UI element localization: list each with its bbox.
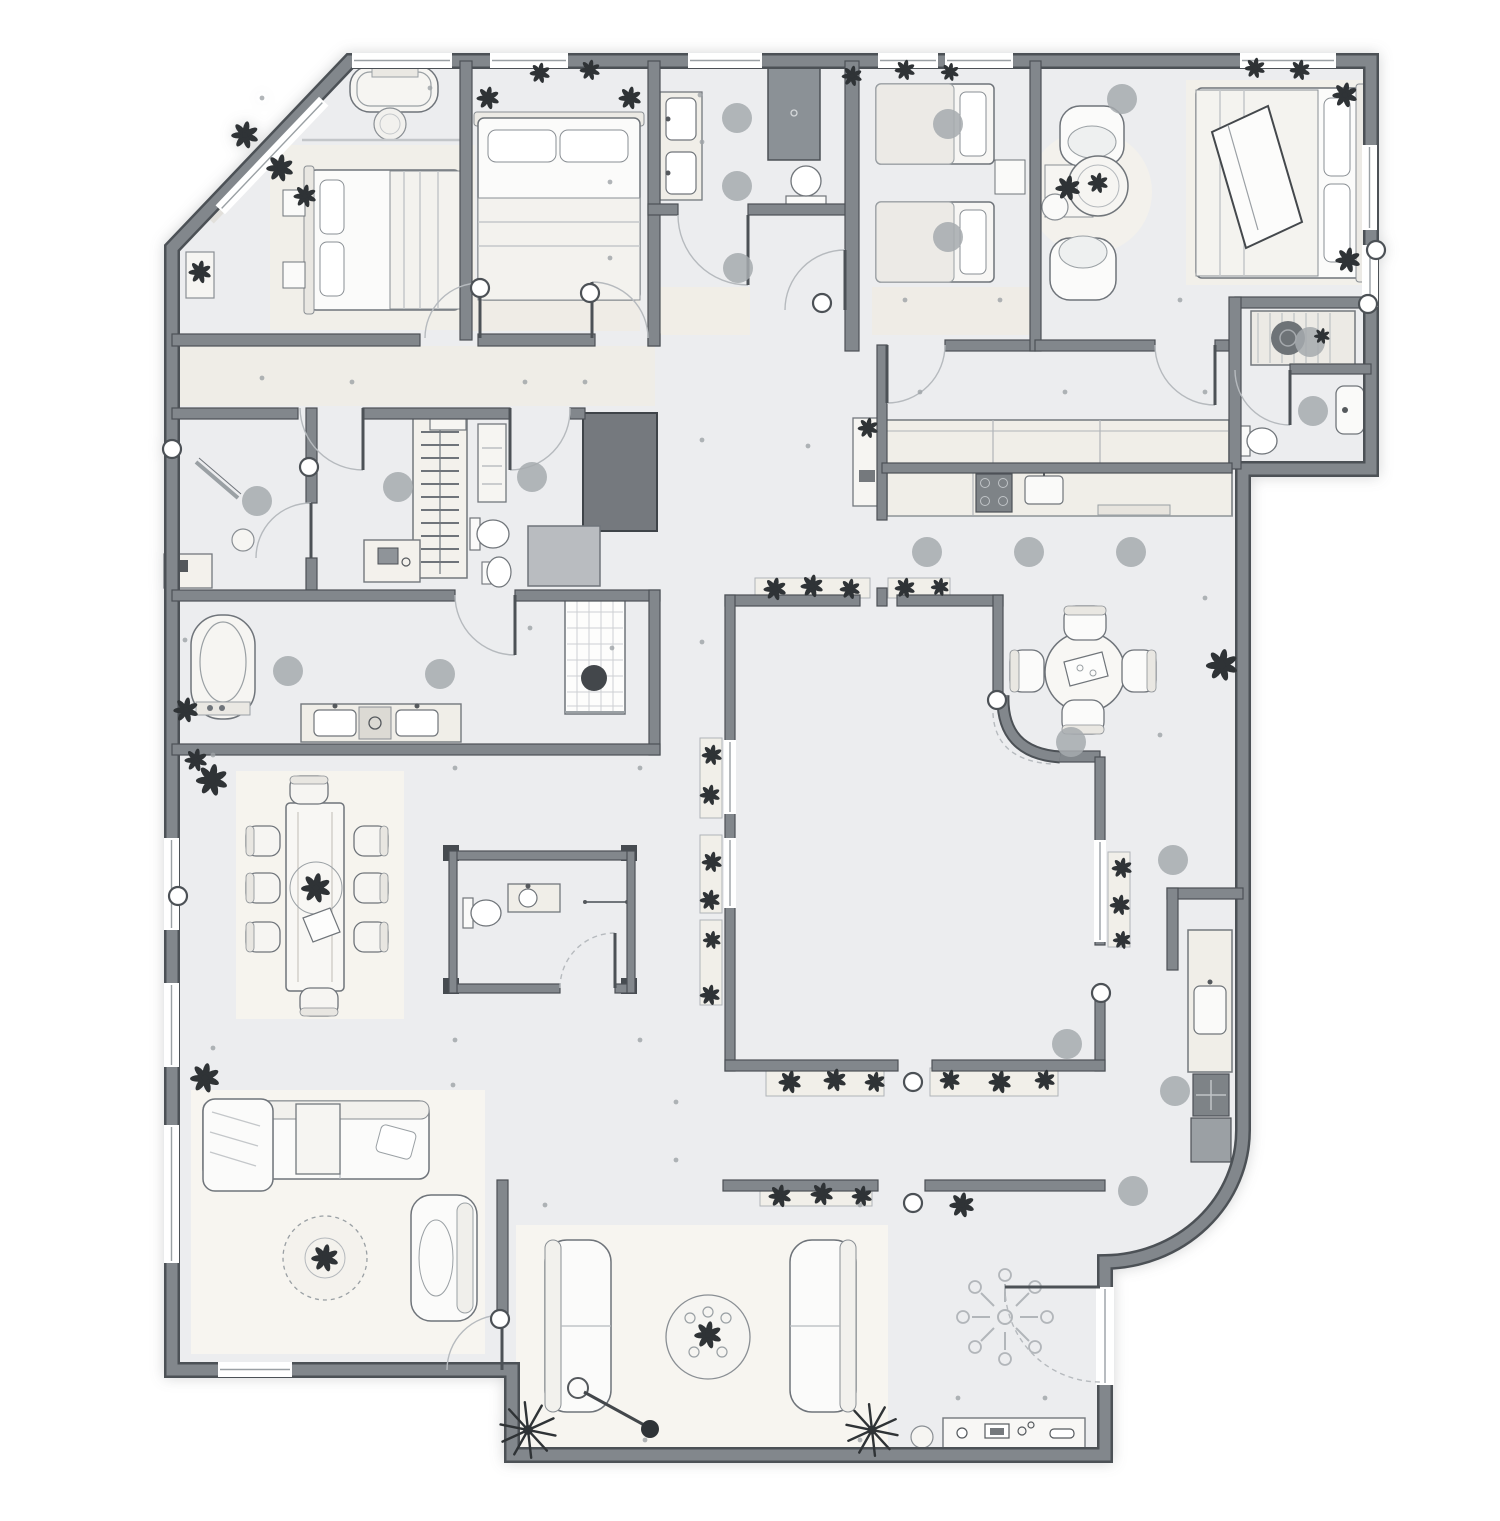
stool[interactable]: [911, 1426, 933, 1448]
wall-segment: [306, 558, 317, 590]
wall-segment: [725, 595, 860, 606]
window[interactable]: [945, 53, 1013, 68]
door-knob[interactable]: [988, 691, 1006, 709]
door-knob[interactable]: [163, 440, 181, 458]
window[interactable]: [724, 740, 736, 814]
wall-segment: [172, 590, 455, 601]
window[interactable]: [1096, 1287, 1114, 1385]
dining-table[interactable]: [286, 803, 344, 991]
wall-segment: [570, 408, 585, 419]
door-knob[interactable]: [1367, 241, 1385, 259]
window[interactable]: [218, 1362, 292, 1377]
wall-segment: [945, 340, 1035, 351]
bathroom-vanity[interactable]: [301, 704, 461, 743]
door-knob[interactable]: [1359, 295, 1377, 313]
sectional-sofa[interactable]: [203, 1099, 429, 1191]
wall-segment: [1167, 888, 1178, 970]
door-knob[interactable]: [491, 1310, 509, 1328]
wall-segment: [748, 204, 858, 215]
window[interactable]: [352, 53, 452, 68]
wall-segment: [363, 408, 510, 419]
double-bed[interactable]: [468, 112, 644, 331]
wall-segment: [452, 851, 630, 860]
sink[interactable]: [508, 884, 560, 913]
wall-segment: [452, 984, 560, 993]
kitchenette-counter[interactable]: [1188, 930, 1232, 1162]
wall-segment: [460, 61, 472, 340]
side-stool[interactable]: [1042, 194, 1068, 220]
shaft: [583, 413, 657, 531]
kitchen-counter[interactable]: [887, 469, 1232, 516]
wall-segment: [725, 595, 735, 1071]
wall-segment: [1229, 297, 1241, 469]
closet-island[interactable]: [364, 540, 420, 582]
door-knob[interactable]: [1092, 984, 1110, 1002]
floor-plan-svg: [0, 0, 1500, 1521]
wall-segment: [1235, 297, 1371, 308]
window[interactable]: [1362, 145, 1377, 230]
loveseat[interactable]: [411, 1195, 477, 1321]
window[interactable]: [724, 838, 736, 908]
wall-segment: [627, 851, 635, 993]
window[interactable]: [1094, 840, 1106, 942]
door-knob[interactable]: [471, 279, 489, 297]
shaft: [528, 526, 600, 586]
door-knob[interactable]: [169, 887, 187, 905]
toilet[interactable]: [463, 898, 501, 928]
window[interactable]: [164, 1125, 179, 1263]
door-knob[interactable]: [581, 284, 599, 302]
hallway-floor[interactable]: [178, 346, 655, 406]
wall-segment: [648, 204, 678, 215]
sofa[interactable]: [790, 1240, 856, 1412]
wall-segment: [306, 408, 317, 503]
built-in-wardrobe[interactable]: [885, 420, 1229, 464]
wall-segment: [515, 590, 660, 601]
window[interactable]: [164, 983, 179, 1067]
wall-segment: [932, 1060, 1105, 1071]
shower[interactable]: [565, 598, 625, 714]
sink[interactable]: [1336, 386, 1364, 434]
floor-plan-page: [0, 0, 1500, 1521]
wall-segment: [725, 1060, 898, 1071]
wardrobe-rack[interactable]: [413, 416, 467, 578]
twin-room-rug[interactable]: [872, 287, 1032, 335]
nightstand[interactable]: [995, 160, 1025, 194]
door-knob[interactable]: [813, 294, 831, 312]
double-bed[interactable]: [304, 166, 460, 314]
bidet[interactable]: [482, 557, 511, 587]
window[interactable]: [490, 53, 568, 68]
window[interactable]: [688, 53, 762, 68]
closet-shelf[interactable]: [478, 424, 506, 502]
wall-segment: [723, 1180, 878, 1191]
door-knob[interactable]: [904, 1073, 922, 1091]
bathtub[interactable]: [191, 615, 255, 719]
hall-mat[interactable]: [660, 287, 750, 335]
door-knob[interactable]: [300, 458, 318, 476]
wall-segment: [449, 851, 457, 993]
wall-segment: [897, 595, 1003, 606]
wall-segment: [1290, 364, 1371, 374]
wall-segment: [845, 61, 859, 351]
wall-segment: [649, 590, 660, 755]
stool[interactable]: [232, 529, 254, 551]
window[interactable]: [164, 838, 179, 930]
wall-segment: [1035, 340, 1155, 351]
wall-segment: [993, 595, 1003, 695]
toilet[interactable]: [470, 518, 509, 550]
shower[interactable]: [768, 66, 820, 160]
toilet[interactable]: [1239, 426, 1277, 456]
wall-segment: [478, 334, 595, 346]
wall-segment: [877, 588, 887, 606]
wall-segment: [172, 408, 298, 419]
bathroom-vanity[interactable]: [660, 92, 702, 200]
armchair[interactable]: [1050, 236, 1116, 300]
wall-segment: [925, 1180, 1105, 1191]
wall-segment: [497, 1180, 508, 1315]
wall-segment: [172, 744, 660, 755]
wall-segment: [1030, 61, 1041, 351]
wall-segment: [172, 334, 420, 346]
wall-segment: [882, 463, 1232, 473]
floor-plan-root: [163, 53, 1385, 1459]
plant[interactable]: [231, 121, 259, 149]
door-knob[interactable]: [904, 1194, 922, 1212]
sofa[interactable]: [545, 1240, 611, 1412]
